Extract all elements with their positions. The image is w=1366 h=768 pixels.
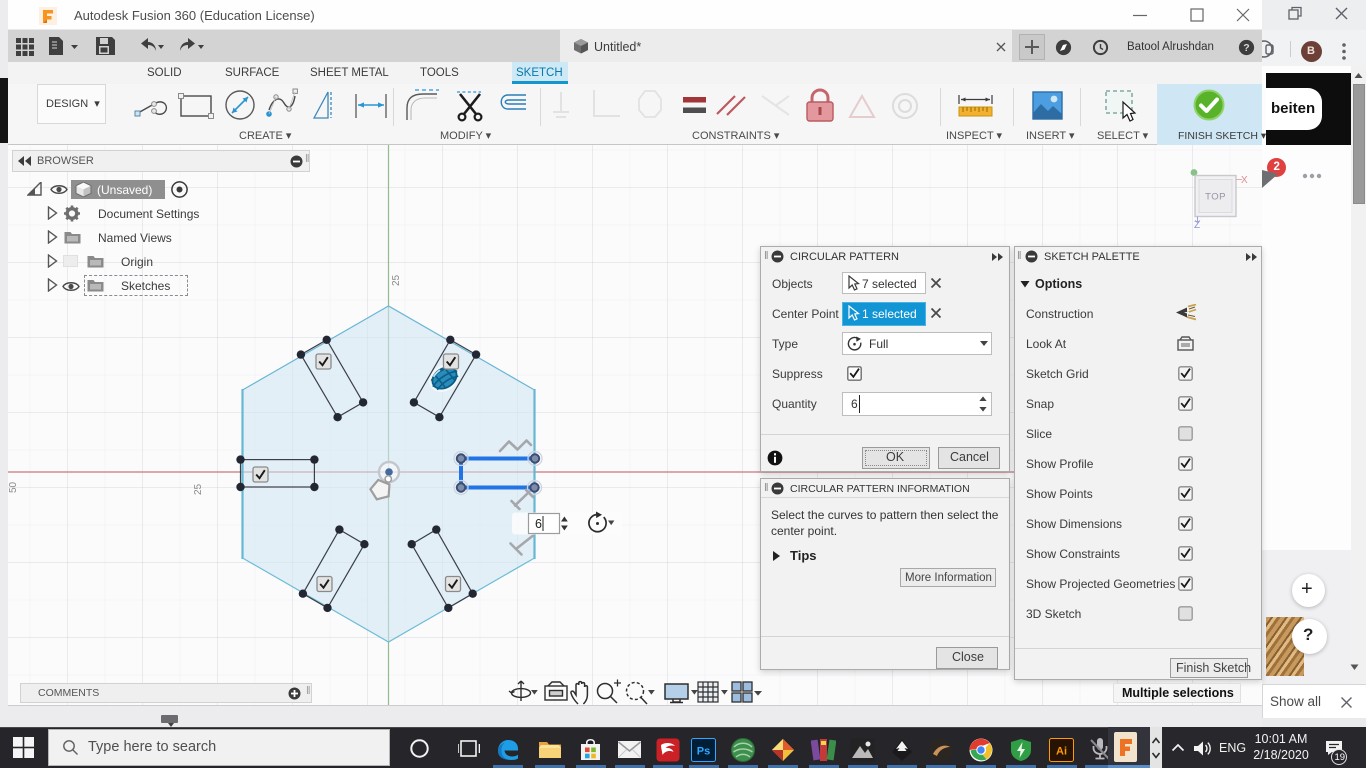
svg-text:Ai: Ai [1056,746,1067,758]
svg-text:6: 6 [535,517,542,531]
svg-text:25: 25 [193,483,204,495]
svg-text:25: 25 [391,274,402,286]
svg-text:50: 50 [8,481,19,493]
svg-text:Ps: Ps [697,746,710,758]
svg-text:TOP: TOP [1205,192,1226,203]
svg-text:X: X [1241,175,1248,186]
